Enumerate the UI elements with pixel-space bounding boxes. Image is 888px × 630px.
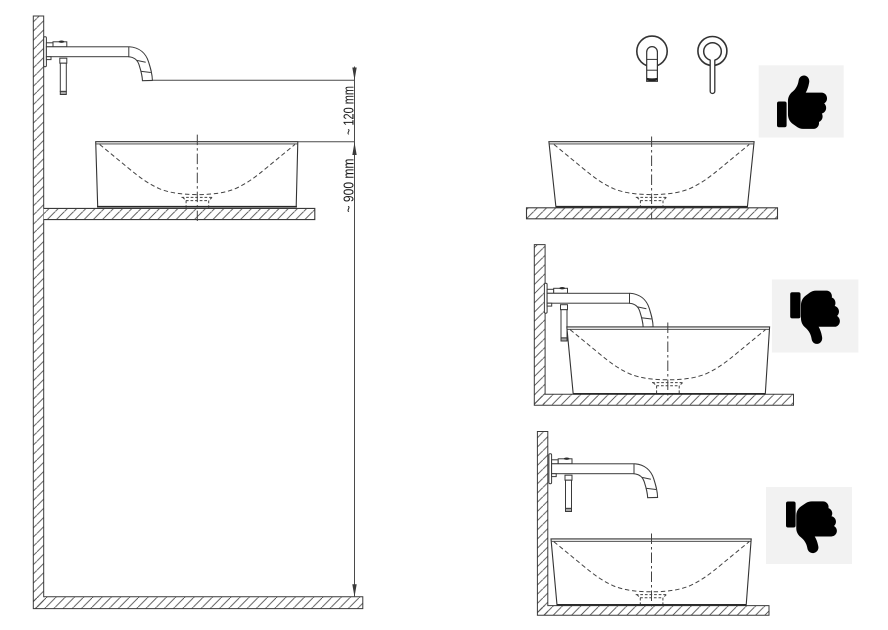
svg-text:~ 900 mm: ~ 900 mm bbox=[341, 159, 358, 213]
svg-text:~ 120 mm: ~ 120 mm bbox=[341, 86, 358, 135]
